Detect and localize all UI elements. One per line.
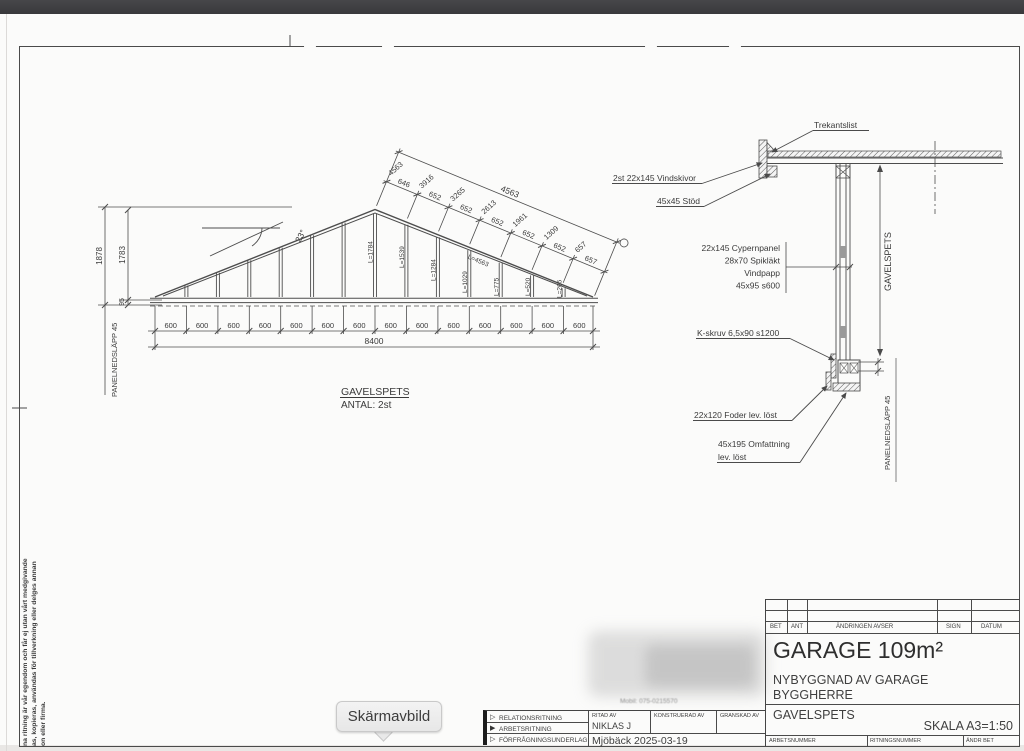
rev-header-datum: DATUM <box>981 624 1002 630</box>
project-title: GARAGE 109m² <box>773 637 943 664</box>
disclaimer-text: na ritning är vår egendom och får ej uta… <box>21 558 47 746</box>
footer-ritningsnummer: RITNINGSNUMMER <box>870 738 921 744</box>
dim-1783: 1783 <box>118 246 127 264</box>
slope-seg: 652 <box>490 215 505 228</box>
project-sub1: NYBYGGNAD AV GARAGE <box>773 673 928 687</box>
layer-label: 45x95 s600 <box>736 281 780 291</box>
layer-label: 28x70 Spikläkt <box>725 256 781 266</box>
slope-seg: 652 <box>521 228 536 241</box>
section-detail <box>759 140 1003 482</box>
slope-cum: 2613 <box>479 198 497 216</box>
slope-seg: 652 <box>552 241 567 254</box>
ritad-av-header: RITAD AV <box>592 713 616 719</box>
row-marker-filled: ▶ <box>490 725 495 732</box>
slope-cum: 4563 <box>386 160 404 178</box>
stud-label: L=1539 <box>399 246 406 268</box>
stud-label: L=520 <box>525 277 532 296</box>
truss-count: ANTAL: 2st <box>341 400 392 411</box>
screenshot-tooltip: Skärmavbild <box>336 701 442 732</box>
granskad-av-header: GRANSKAD AV <box>720 713 759 719</box>
base-dim: 600 <box>164 321 177 330</box>
kskruv-label: K-skruv 6,5x90 s1200 <box>697 328 779 338</box>
footer-arbetsnummer: ARBETSNUMMER <box>769 738 816 744</box>
slope-seg: 657 <box>583 254 598 267</box>
drawing-scale: SKALA A3=1:50 <box>924 719 1013 733</box>
rev-header-avser: ÄNDRINGEN AVSER <box>836 624 893 630</box>
base-dim: 600 <box>416 321 429 330</box>
slope-cum: 3916 <box>417 172 435 190</box>
stud-label: L=1029 <box>462 271 469 293</box>
drawing-name: GAVELSPETS <box>773 708 855 722</box>
base-total-dim: 8400 <box>365 336 384 346</box>
vindskivor-label: 2st 22x145 Vindskivor <box>613 173 696 183</box>
slope-cum: 3265 <box>448 185 466 203</box>
truss-title: GAVELSPETS <box>341 386 410 398</box>
rev-header-ant: ANT <box>791 624 803 630</box>
dim-1878: 1878 <box>95 247 104 265</box>
omfattning-label-2: lev. löst <box>718 452 747 462</box>
row-marker-outline: ▷ <box>490 714 495 721</box>
footer-andr-bet: ÄNDR BET <box>966 738 994 744</box>
stud-label: L=265 <box>557 279 564 298</box>
base-dim: 600 <box>353 321 366 330</box>
base-dimensions: 600 600 600 600 600 600 600 600 600 600 … <box>148 306 600 350</box>
base-dim: 600 <box>447 321 460 330</box>
row-forfragningsunderlag: FÖRFRÅGNINGSUNDERLAG <box>499 737 587 744</box>
layer-label: 22x145 Cypernpanel <box>702 243 781 253</box>
height-dimensions: 1878 1783 95 PANELNEDSLÄPP 45 <box>95 204 292 397</box>
panel-label-left: PANELNEDSLÄPP 45 <box>110 323 119 397</box>
base-dim: 600 <box>259 321 272 330</box>
slope-cum: 657 <box>573 239 588 254</box>
base-dim: 600 <box>542 321 555 330</box>
stud-label: L=775 <box>494 277 501 296</box>
disclaimer-line3: on eller firma. <box>40 701 47 746</box>
stud-label: L=1284 <box>431 259 438 281</box>
foder-label: 22x120 Foder lev. löst <box>694 410 778 420</box>
dim-95: 95 <box>119 298 126 306</box>
panel-label-right: PANELNEDSLÄPP 45 <box>883 396 892 470</box>
roof-angle-annotation: 23° <box>202 222 308 256</box>
base-dim: 600 <box>227 321 240 330</box>
rev-header-bet: BET <box>770 624 782 630</box>
stud-length-labels: L=1784 L=1539 L=1284 L=1029 L=775 L=520 … <box>368 241 564 298</box>
title-block: BET ANT ÄNDRINGEN AVSER SIGN DATUM GARAG… <box>765 599 1020 746</box>
row-arbetsritning: ARBETSRITNING <box>499 726 552 733</box>
base-dim: 600 <box>384 321 397 330</box>
stud-label: L=1784 <box>368 241 375 263</box>
detail-labels: Trekantslist 2st 22x145 Vindskivor 45x45… <box>612 120 893 470</box>
disclaimer-line2: as, kopieras, användas för tillverkning … <box>31 561 38 746</box>
stod-label: 45x45 Stöd <box>657 196 700 206</box>
base-dim: 600 <box>290 321 303 330</box>
omfattning-label-1: 45x195 Omfattning <box>718 439 790 449</box>
base-dim: 600 <box>196 321 209 330</box>
detail-gavelspets-label: GAVELSPETS <box>883 232 893 291</box>
disclaimer-line1: na ritning är vår egendom och får ej uta… <box>21 558 29 746</box>
konstruerad-av-header: KONSTRUERAD AV <box>654 713 704 719</box>
base-dim: 600 <box>322 321 335 330</box>
place-date: Mjöbäck 2025-03-19 <box>592 735 688 747</box>
slope-seg: 652 <box>428 189 443 202</box>
project-sub2: BYGGHERRE <box>773 688 853 702</box>
truss-caption: GAVELSPETS ANTAL: 2st <box>340 386 410 411</box>
slope-total: 4563 <box>499 183 521 200</box>
base-dim: 600 <box>479 321 492 330</box>
angle-label: 23° <box>293 228 308 244</box>
row-relationsritning: RELATIONSRITNING <box>499 715 562 722</box>
rev-header-sign: SIGN <box>946 624 961 630</box>
base-dim: 600 <box>510 321 523 330</box>
row-marker-outline2: ▷ <box>490 736 495 743</box>
base-dim: 600 <box>573 321 586 330</box>
slope-seg: 652 <box>459 202 474 215</box>
trekantslist-label: Trekantslist <box>814 120 858 130</box>
slope-seg: 646 <box>396 176 411 189</box>
rafter-length: L=4563 <box>467 254 490 269</box>
layer-label: Vindpapp <box>744 268 780 278</box>
slope-cum: 1961 <box>511 211 529 229</box>
ritad-av-value: NIKLAS J <box>592 721 631 731</box>
info-block: ▷ ▶ ▷ RELATIONSRITNING ARBETSRITNING FÖR… <box>483 710 765 745</box>
slope-cum: 1309 <box>542 224 560 242</box>
